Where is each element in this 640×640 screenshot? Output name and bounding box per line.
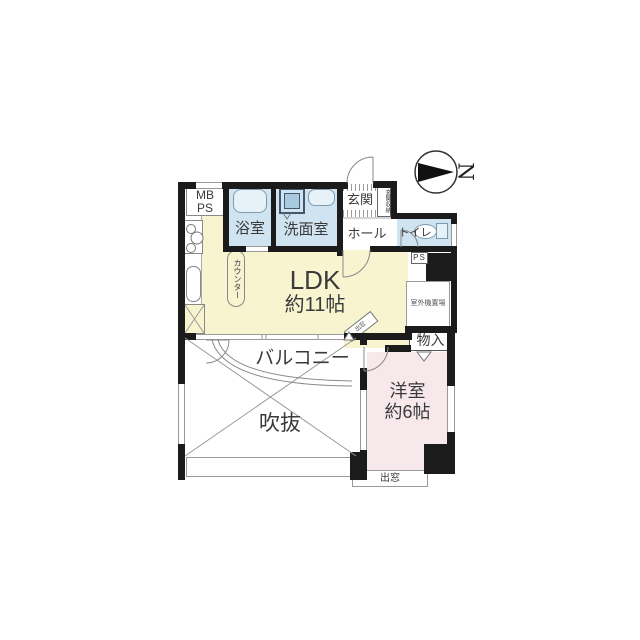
balcony-label: バルコニー	[240, 349, 365, 370]
western-room-size-label: 約6帖	[367, 403, 448, 423]
window-western-right	[447, 386, 455, 432]
balcony-door-arc	[206, 340, 229, 363]
wall-ps-block	[426, 253, 452, 281]
entrance-label: 玄関	[343, 193, 377, 207]
bath-label: 浴室	[229, 221, 271, 238]
window-toilet	[451, 224, 457, 246]
wall-western-top	[385, 345, 411, 352]
ldk-label: LDK	[250, 266, 380, 295]
entrance-tile-hatch-top	[343, 184, 377, 191]
closet-label: 物入	[409, 333, 452, 348]
bay-window-label: 出窓	[352, 473, 428, 484]
counter-label: カウンター	[231, 255, 241, 303]
stove-icon	[184, 220, 203, 254]
compass-north-label: N	[453, 160, 476, 184]
window-divider	[360, 390, 367, 450]
void-label: 吹抜	[250, 412, 310, 435]
western-room-label: 洋室	[367, 382, 448, 402]
toilet-tank-icon	[436, 223, 448, 239]
wall-notch	[424, 444, 455, 474]
kitchen-sink-icon	[186, 266, 201, 302]
wall-under-bath	[223, 246, 343, 252]
balcony-sliding-door	[196, 334, 344, 340]
wall-ldk-bottom-left	[178, 333, 196, 340]
bathtub-icon	[233, 189, 267, 213]
refrigerator-space-icon	[184, 304, 205, 334]
compass-icon	[415, 151, 457, 193]
wall-toilet-top	[391, 213, 457, 219]
toilet-label: トイレ	[396, 227, 434, 239]
outdoor-unit-label: 室外機置場	[404, 300, 452, 308]
washroom-label: 洗面室	[274, 222, 338, 239]
hall-label: ホール	[343, 227, 391, 241]
entrance-storage-label: 玄関収納	[378, 186, 390, 216]
floor-plan: N MB PS 浴室 洗面室 玄関 玄関収納 ホール トイレ PS 室外機置場 …	[0, 0, 640, 640]
window-left	[178, 384, 185, 444]
ps-meter-label: PS	[186, 202, 224, 215]
washbasin-icon	[308, 189, 335, 206]
entrance-tile-hatch-bottom	[343, 210, 377, 217]
washing-machine-drum-icon	[284, 193, 300, 209]
pipe-space-label: PS	[411, 254, 428, 263]
entrance-door-arc	[347, 157, 373, 183]
room-ldk-upper	[202, 216, 224, 252]
void-bottom-strip	[186, 457, 352, 477]
bath-sliding-door	[246, 246, 268, 252]
ldk-size-label: 約11帖	[250, 294, 380, 316]
